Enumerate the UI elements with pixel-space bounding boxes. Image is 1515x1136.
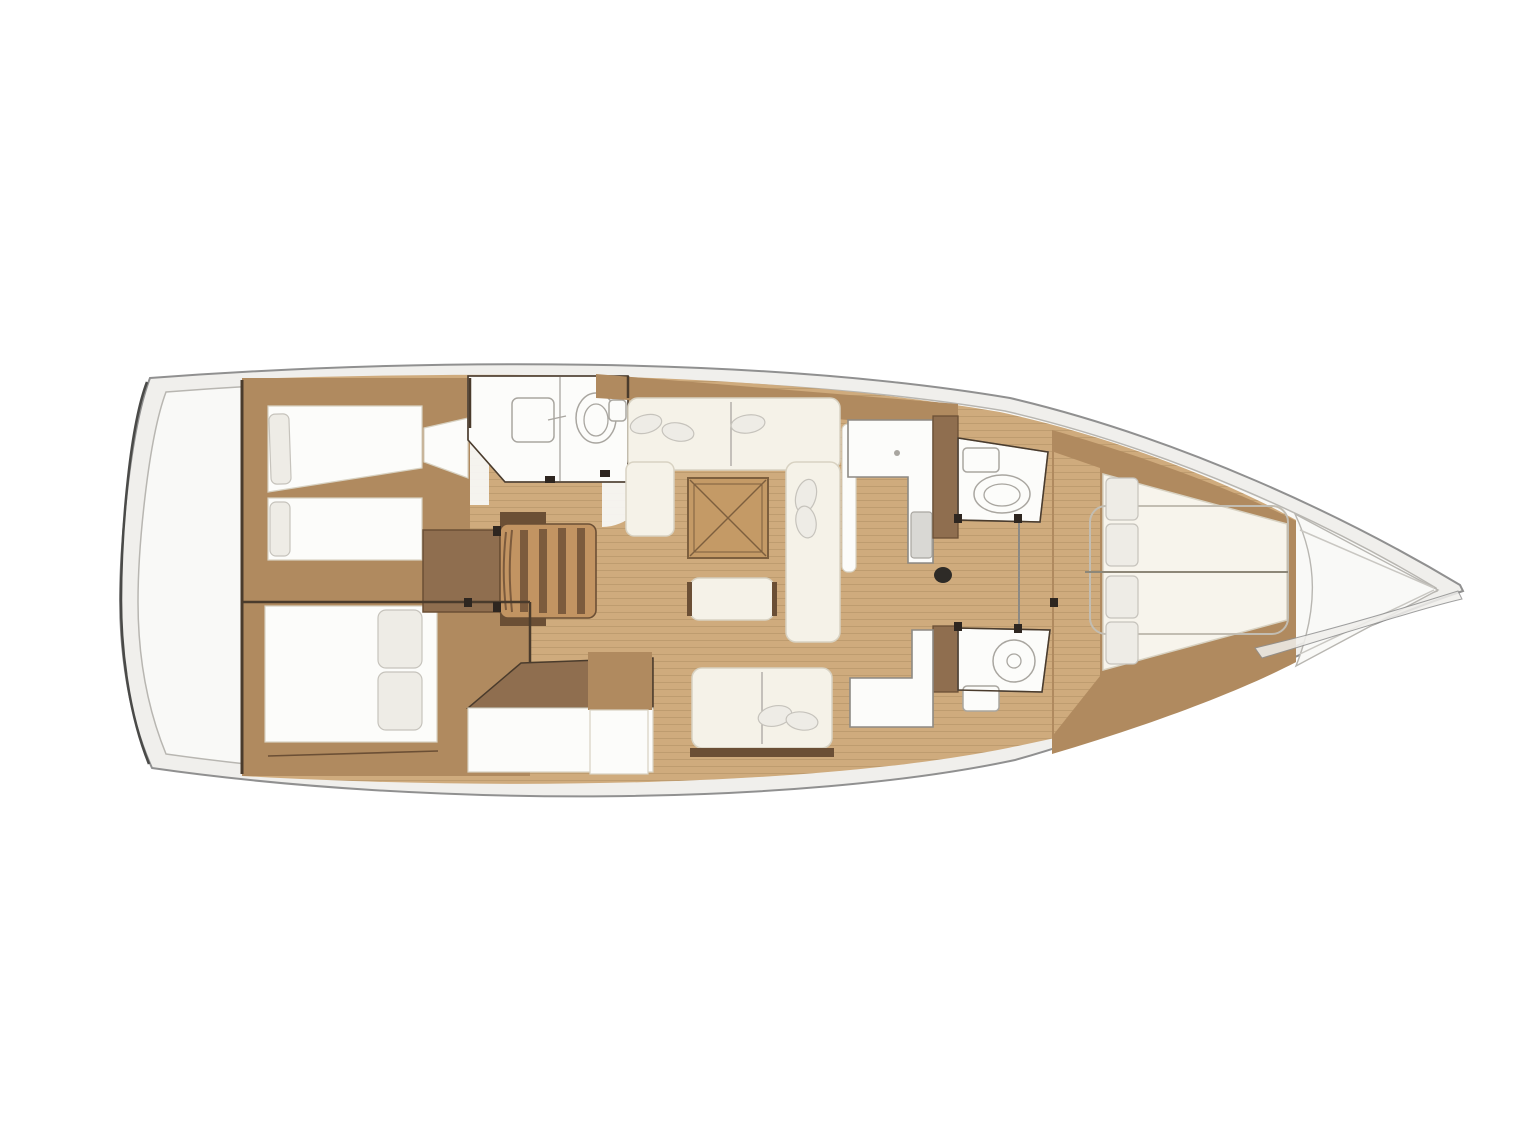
- companionway-landing: [423, 530, 500, 612]
- companionway-tread-4: [577, 528, 585, 614]
- companionway-tread-3: [558, 528, 566, 614]
- latch-corridor-door-bottom: [1014, 624, 1022, 633]
- forward-head-starboard-toilet: [993, 640, 1035, 682]
- v-berth-pillow-4: [1106, 622, 1138, 664]
- v-berth-pillow-2: [1106, 524, 1138, 566]
- starboard-settee-plinth: [690, 748, 834, 757]
- settee-side-cabinet-wood: [588, 652, 652, 710]
- hinge-corridor-door-top: [954, 514, 962, 523]
- aft-head-sink: [609, 400, 626, 421]
- forward-head-port-toilet: [974, 475, 1030, 513]
- companionway-tread-1: [520, 530, 528, 612]
- latch-aft-head-door: [600, 470, 610, 477]
- hinge-companionway-top: [493, 526, 501, 536]
- mast-bulkhead-starboard: [933, 626, 958, 692]
- mast-post: [934, 567, 952, 583]
- v-berth-pillow-3: [1106, 576, 1138, 618]
- salon-ottoman-trim-left: [687, 582, 692, 616]
- galley-sink: [911, 512, 932, 558]
- companionway-tread-2: [539, 529, 547, 613]
- salon-ottoman-trim-right: [772, 582, 777, 616]
- aft-cabin-starboard-pillow-2: [378, 672, 422, 730]
- yacht-floor-plan-canvas: [0, 0, 1515, 1136]
- salon-sofa-back-section: [628, 398, 840, 470]
- galley-faucet: [894, 450, 900, 456]
- hinge-forward-cabin-door: [1050, 598, 1058, 607]
- settee-side-cabinet: [590, 710, 648, 774]
- salon-sofa-left-return: [626, 462, 674, 536]
- forward-cabin: [1052, 430, 1296, 754]
- forward-head-port-sink: [963, 448, 999, 472]
- shower-tray: [512, 398, 554, 442]
- aft-cabin-starboard-pillow-1: [378, 610, 422, 668]
- salon-ottoman: [690, 578, 774, 620]
- yacht-floor-plan: [0, 0, 1515, 1136]
- aft-cabin-port-berth-2: [268, 498, 422, 560]
- latch-corridor-door-top: [1014, 514, 1022, 523]
- starboard-settee-area: [468, 652, 834, 774]
- hinge-companionway-bottom: [493, 602, 501, 612]
- aft-cabin-port-berth-2-pillow: [270, 502, 290, 556]
- hinge-corridor-door-bottom: [954, 622, 962, 631]
- hinge-aft-cabin-starboard-door: [464, 598, 472, 607]
- v-berth-pillow-1: [1106, 478, 1138, 520]
- hinge-aft-head-door: [545, 476, 555, 483]
- aft-cabin-port-berth-1-pillow: [269, 414, 291, 485]
